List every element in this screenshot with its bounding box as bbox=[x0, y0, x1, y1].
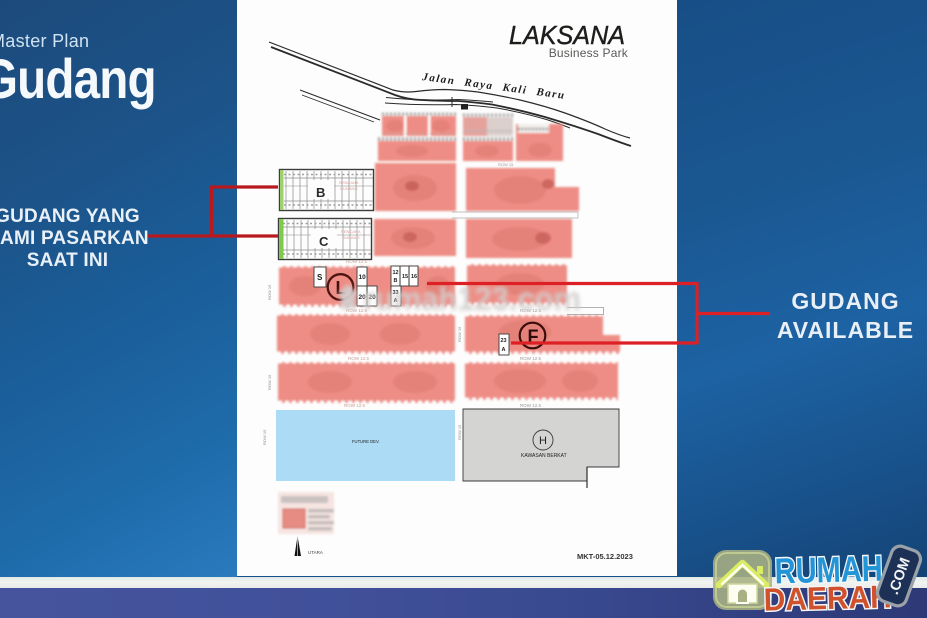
svg-text:RENCANA: RENCANA bbox=[339, 180, 359, 185]
svg-text:ROW 15: ROW 15 bbox=[262, 429, 267, 445]
svg-text:C: C bbox=[319, 234, 329, 249]
svg-text:ROW 12.5: ROW 12.5 bbox=[520, 403, 542, 408]
svg-text:KAWASAN BERKAT: KAWASAN BERKAT bbox=[521, 453, 567, 459]
svg-text:ROW 12.5: ROW 12.5 bbox=[520, 356, 542, 361]
svg-text:B: B bbox=[316, 185, 325, 200]
svg-text:A: A bbox=[502, 347, 506, 353]
svg-text:S: S bbox=[317, 273, 323, 282]
svg-text:UTARA: UTARA bbox=[308, 550, 323, 555]
svg-text:ROW 15: ROW 15 bbox=[457, 424, 462, 440]
svg-text:ROW 12.5: ROW 12.5 bbox=[348, 356, 370, 361]
svg-text:Jalan Raya Kali Baru: Jalan Raya Kali Baru bbox=[421, 71, 567, 102]
svg-text:12: 12 bbox=[393, 270, 399, 276]
svg-text:GUDANG: GUDANG bbox=[342, 235, 360, 240]
svg-text:Business Park: Business Park bbox=[549, 46, 629, 60]
svg-text:H: H bbox=[539, 435, 547, 447]
svg-text:ROW 15: ROW 15 bbox=[267, 284, 272, 300]
svg-text:23: 23 bbox=[501, 338, 507, 344]
svg-text:ROW 15: ROW 15 bbox=[498, 162, 514, 167]
svg-text:MKT-05.12.2023: MKT-05.12.2023 bbox=[577, 552, 633, 561]
svg-text:rumah123.com: rumah123.com bbox=[363, 280, 581, 317]
svg-text:DAERAH: DAERAH bbox=[763, 578, 892, 617]
svg-text:ROW 15: ROW 15 bbox=[267, 374, 272, 390]
svg-text:GUDANG: GUDANG bbox=[340, 186, 358, 191]
svg-text:ROW 12.5: ROW 12.5 bbox=[344, 403, 366, 408]
svg-text:FUTURE DEV.: FUTURE DEV. bbox=[352, 439, 380, 444]
svg-text:RENCANA: RENCANA bbox=[341, 229, 361, 234]
svg-text:ROW 12.5: ROW 12.5 bbox=[346, 259, 368, 264]
svg-text:ROW 15: ROW 15 bbox=[457, 326, 462, 342]
